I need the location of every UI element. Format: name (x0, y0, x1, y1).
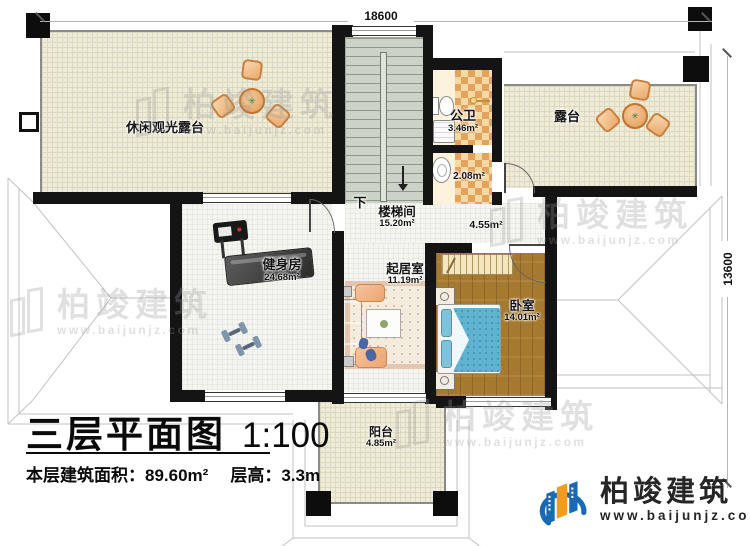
plan-title: 三层平面图 (26, 404, 226, 458)
wall (332, 392, 344, 404)
plan-scale: 1:100 (242, 416, 330, 456)
column (683, 56, 709, 82)
coffee-table-icon (366, 309, 401, 338)
company-name: 柏竣建筑 (600, 477, 750, 507)
label-gym: 健身房 24.68m² (250, 258, 314, 283)
column (433, 491, 458, 516)
column (306, 491, 331, 516)
window (203, 193, 291, 203)
towel-bar-icon (477, 100, 490, 102)
floor-plan: ✳ ✳ (0, 0, 750, 546)
watermark: 柏竣建筑 www.baijunjz.com (490, 196, 693, 248)
wall (170, 390, 205, 402)
towel-hook-icon (470, 97, 477, 104)
label-down: 下 (350, 196, 370, 211)
treadmill-icon (206, 210, 323, 297)
patio-chair-icon (628, 78, 651, 101)
floor-area-label: 本层建筑面积： (26, 466, 145, 485)
wall (416, 25, 433, 37)
patio-table-icon: ✳ (622, 103, 648, 129)
title-underline (26, 452, 270, 454)
wall (333, 25, 353, 37)
plan-title-row: 三层平面图 1:100 (26, 404, 330, 458)
company-logo-icon (536, 473, 590, 527)
company-website: www.baijunjz.com (600, 508, 750, 523)
watermark-building-icon (490, 196, 528, 248)
stair-rail (380, 52, 387, 202)
wall (492, 70, 502, 162)
label-terrace: 露台 (546, 110, 588, 125)
label-bath-lower-area: 2.08m² (444, 171, 494, 182)
label-stairwell: 楼梯间 15.20m² (368, 205, 426, 230)
wall (285, 390, 332, 402)
patio-chair-icon (241, 59, 264, 82)
stair-arrow (402, 166, 404, 184)
wall (425, 243, 472, 253)
company-logo: 柏竣建筑 www.baijunjz.com (536, 473, 750, 527)
armchair-icon (355, 284, 385, 302)
watermark: 柏竣建筑 www.baijunjz.com (136, 86, 339, 138)
watermark-building-icon (10, 286, 48, 338)
dim-right-value: 13600 (721, 241, 735, 297)
floor-height-label: 层高： (230, 466, 281, 485)
watermark-building-icon (396, 398, 434, 450)
watermark-building-icon (136, 86, 174, 138)
stair-arrow-head (398, 184, 408, 191)
wall (423, 37, 433, 205)
watermark: 柏竣建筑 www.baijunjz.com (396, 398, 599, 450)
wall (332, 231, 344, 402)
room-terrace (504, 84, 697, 188)
watermark: 柏竣建筑 www.baijunjz.com (10, 286, 213, 338)
window (352, 26, 416, 36)
plan-subtitle: 本层建筑面积：89.60m²层高：3.3m (26, 461, 320, 486)
dumbbells-icon (222, 326, 266, 358)
floor-height-value: 3.3m (281, 466, 320, 485)
label-bedroom: 卧室 14.01m² (492, 299, 552, 324)
wardrobe-icon (441, 254, 513, 275)
label-living-room: 起居室 11.19m² (376, 262, 434, 287)
floor-area-value: 89.60m² (145, 466, 208, 485)
window (205, 392, 285, 402)
column-hollow (19, 112, 39, 132)
dim-top-value: 18600 (348, 9, 414, 23)
wall (433, 145, 473, 153)
label-public-bath: 公卫 3.46m² (435, 109, 491, 134)
wall (433, 58, 502, 70)
